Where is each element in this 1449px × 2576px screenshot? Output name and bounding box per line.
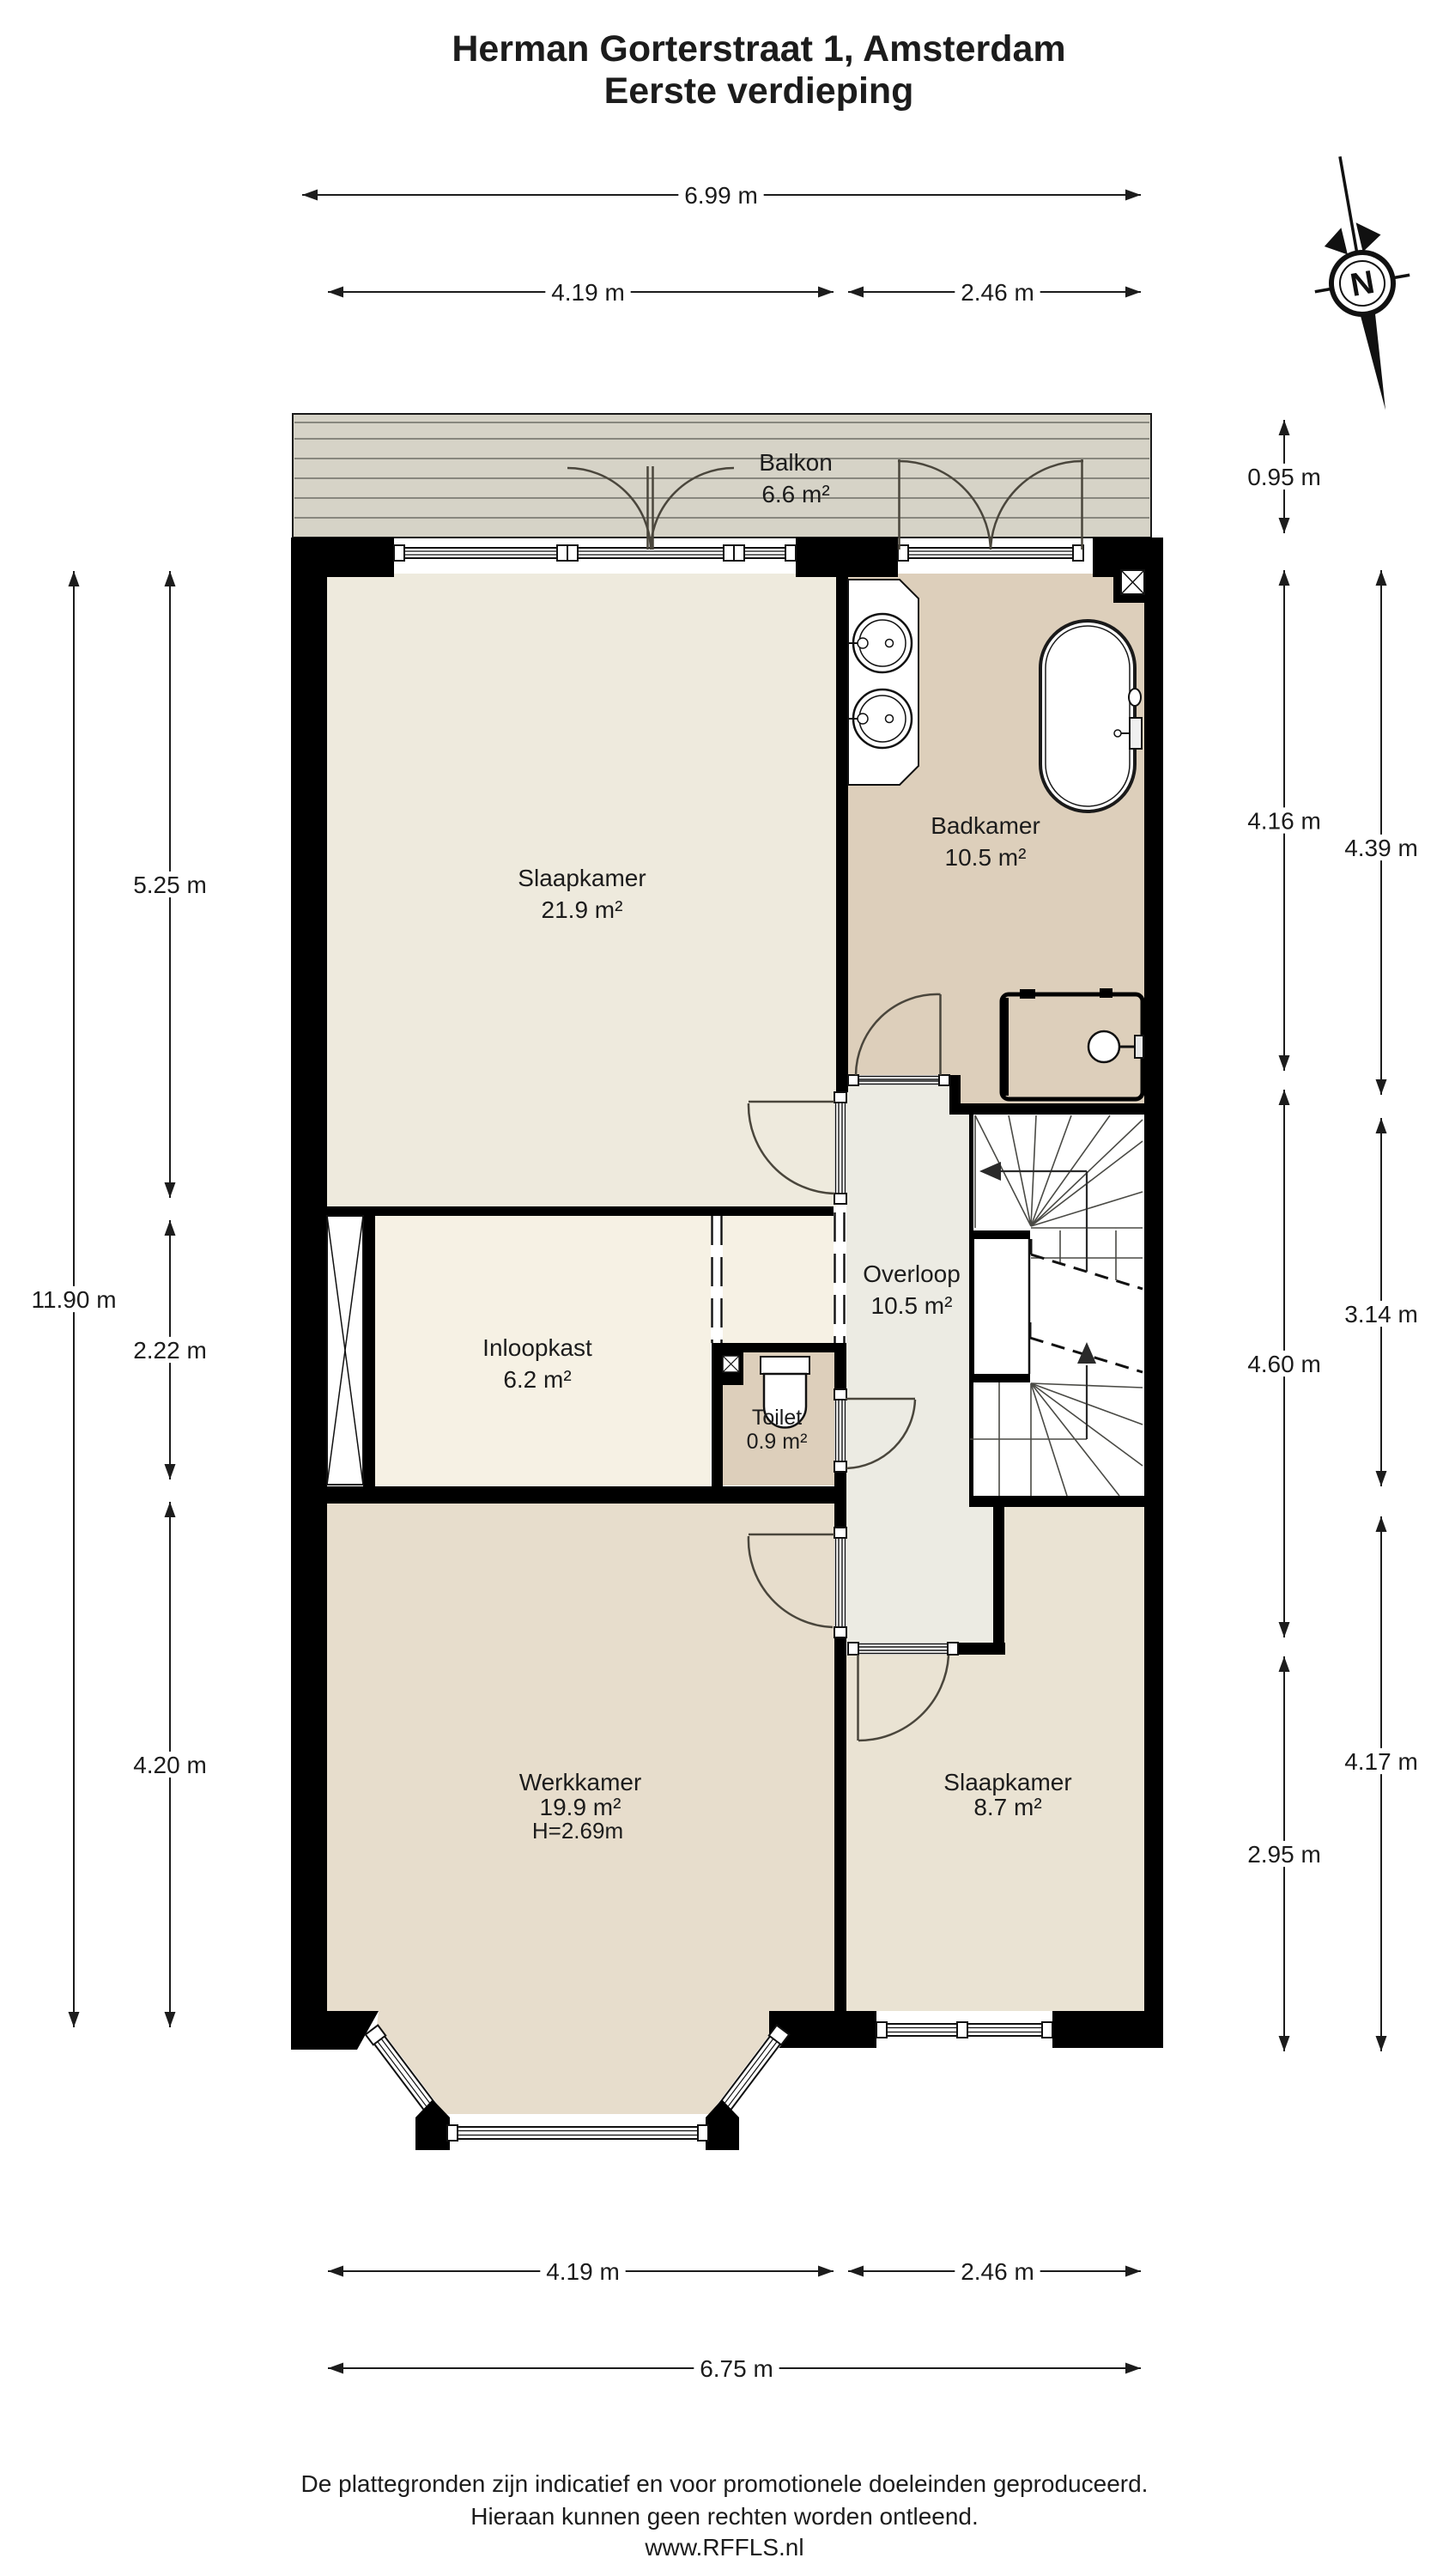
svg-text:5.25 m: 5.25 m — [133, 872, 207, 898]
svg-text:www.RFFLS.nl: www.RFFLS.nl — [644, 2534, 803, 2561]
svg-text:4.17 m: 4.17 m — [1344, 1748, 1418, 1775]
svg-text:Eerste verdieping: Eerste verdieping — [604, 70, 914, 112]
svg-text:Balkon: Balkon — [759, 449, 833, 476]
svg-text:Werkkamer: Werkkamer — [519, 1769, 642, 1795]
svg-text:4.19 m: 4.19 m — [546, 2258, 620, 2285]
svg-text:4.19 m: 4.19 m — [551, 279, 625, 306]
svg-text:De plattegronden zijn indicati: De plattegronden zijn indicatief en voor… — [301, 2470, 1149, 2497]
svg-text:Hieraan kunnen geen rechten wo: Hieraan kunnen geen rechten worden ontle… — [470, 2503, 979, 2530]
svg-text:0.9 m²: 0.9 m² — [747, 1430, 808, 1454]
svg-text:21.9 m²: 21.9 m² — [542, 896, 623, 923]
svg-text:Slaapkamer: Slaapkamer — [943, 1769, 1071, 1795]
svg-text:3.14 m: 3.14 m — [1344, 1301, 1418, 1327]
svg-text:4.20 m: 4.20 m — [133, 1752, 207, 1778]
svg-text:10.5 m²: 10.5 m² — [945, 844, 1027, 871]
svg-text:6.99 m: 6.99 m — [684, 182, 758, 209]
svg-text:Inloopkast: Inloopkast — [482, 1334, 592, 1361]
svg-text:8.7 m²: 8.7 m² — [973, 1794, 1041, 1820]
svg-text:6.2 m²: 6.2 m² — [503, 1366, 571, 1393]
svg-text:2.22 m: 2.22 m — [133, 1337, 207, 1364]
svg-text:6.6 m²: 6.6 m² — [761, 481, 829, 507]
svg-text:Slaapkamer: Slaapkamer — [518, 865, 646, 891]
svg-text:6.75 m: 6.75 m — [700, 2355, 773, 2382]
svg-text:2.95 m: 2.95 m — [1247, 1841, 1321, 1868]
svg-text:0.95 m: 0.95 m — [1247, 464, 1321, 490]
svg-text:H=2.69m: H=2.69m — [532, 1818, 623, 1844]
svg-text:Badkamer: Badkamer — [931, 812, 1040, 839]
svg-text:2.46 m: 2.46 m — [961, 279, 1034, 306]
svg-text:Herman Gorterstraat 1, Amsterd: Herman Gorterstraat 1, Amsterdam — [452, 28, 1065, 70]
svg-text:Overloop: Overloop — [863, 1261, 961, 1287]
svg-text:4.60 m: 4.60 m — [1247, 1351, 1321, 1377]
svg-text:11.90 m: 11.90 m — [31, 1286, 116, 1313]
svg-text:4.39 m: 4.39 m — [1344, 835, 1418, 861]
svg-text:10.5 m²: 10.5 m² — [871, 1292, 953, 1319]
svg-text:2.46 m: 2.46 m — [961, 2258, 1034, 2285]
svg-text:Toilet: Toilet — [752, 1406, 802, 1430]
svg-text:19.9 m²: 19.9 m² — [540, 1794, 621, 1820]
svg-text:4.16 m: 4.16 m — [1247, 808, 1321, 835]
